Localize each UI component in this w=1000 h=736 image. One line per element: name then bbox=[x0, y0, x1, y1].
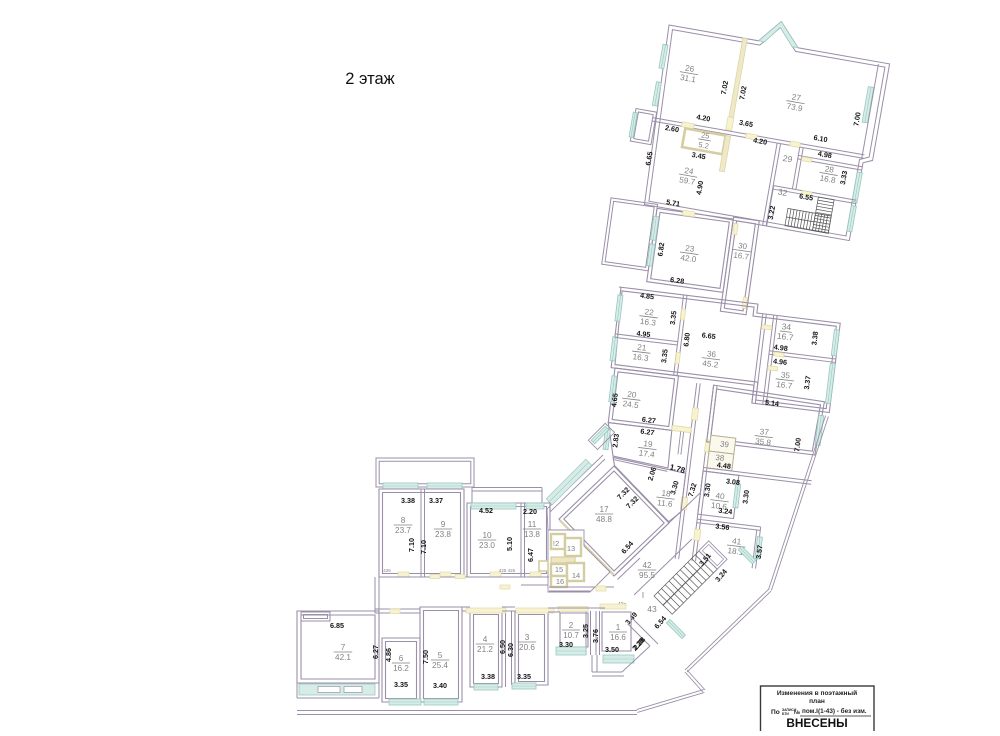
svg-text:4: 4 bbox=[483, 635, 488, 644]
svg-text:41: 41 bbox=[732, 537, 743, 547]
svg-text:18: 18 bbox=[661, 489, 672, 499]
svg-text:3.37: 3.37 bbox=[429, 496, 443, 505]
svg-text:95.5: 95.5 bbox=[639, 571, 655, 580]
svg-text:3.38: 3.38 bbox=[481, 672, 495, 681]
svg-text:4.65: 4.65 bbox=[609, 393, 620, 408]
svg-text:14: 14 bbox=[572, 571, 580, 580]
svg-text:!2: !2 bbox=[553, 539, 559, 548]
svg-text:6.65: 6.65 bbox=[701, 330, 716, 341]
svg-text:3.37: 3.37 bbox=[802, 375, 813, 390]
svg-text:40: 40 bbox=[715, 491, 726, 501]
svg-text:36: 36 bbox=[706, 349, 717, 359]
svg-text:3.38: 3.38 bbox=[809, 331, 820, 346]
svg-text:3.35: 3.35 bbox=[394, 680, 408, 689]
svg-text:16.6: 16.6 bbox=[610, 633, 626, 642]
svg-text:426: 426 bbox=[383, 568, 391, 573]
svg-text:13: 13 bbox=[567, 544, 575, 553]
svg-text:3.24: 3.24 bbox=[718, 506, 733, 517]
svg-text:10: 10 bbox=[482, 531, 492, 540]
svg-text:43: 43 bbox=[647, 604, 657, 614]
svg-text:По: По bbox=[771, 709, 780, 716]
svg-text:21.2: 21.2 bbox=[477, 645, 493, 654]
svg-text:2: 2 bbox=[569, 621, 574, 630]
svg-text:3.38: 3.38 bbox=[401, 496, 415, 505]
svg-text:16.7: 16.7 bbox=[776, 331, 794, 343]
svg-text:4.85: 4.85 bbox=[640, 291, 655, 302]
svg-text:30: 30 bbox=[738, 241, 749, 251]
svg-text:29: 29 bbox=[782, 153, 793, 165]
svg-text:7.00: 7.00 bbox=[792, 437, 803, 452]
svg-text:3.76: 3.76 bbox=[591, 629, 600, 643]
svg-text:425 426: 425 426 bbox=[499, 568, 516, 573]
svg-text:23.0: 23.0 bbox=[479, 541, 495, 550]
svg-text:16.2: 16.2 bbox=[393, 664, 409, 673]
svg-text:48.8: 48.8 bbox=[596, 515, 612, 524]
svg-text:7: 7 bbox=[341, 643, 346, 652]
svg-text:8: 8 bbox=[401, 516, 406, 525]
svg-text:6.27: 6.27 bbox=[640, 427, 655, 438]
svg-text:10.7: 10.7 bbox=[563, 631, 579, 640]
svg-text:пом.I(1-43) - без изм.: пом.I(1-43) - без изм. bbox=[802, 707, 867, 715]
svg-text:6.27: 6.27 bbox=[371, 645, 380, 659]
svg-text:3.35: 3.35 bbox=[659, 349, 670, 364]
svg-text:3.35: 3.35 bbox=[517, 672, 531, 681]
svg-text:3.56: 3.56 bbox=[715, 521, 730, 532]
svg-text:20.6: 20.6 bbox=[519, 643, 535, 652]
svg-text:19: 19 bbox=[643, 439, 654, 449]
svg-text:6.47: 6.47 bbox=[526, 548, 535, 562]
svg-text:3.40: 3.40 bbox=[433, 681, 447, 690]
svg-text:1: 1 bbox=[616, 623, 621, 632]
svg-text:42.1: 42.1 bbox=[335, 653, 351, 662]
svg-text:11.6: 11.6 bbox=[657, 498, 674, 509]
svg-text:4.52: 4.52 bbox=[479, 506, 493, 515]
svg-text:20: 20 bbox=[627, 390, 638, 400]
svg-text:5.2: 5.2 bbox=[698, 140, 710, 151]
svg-text:37: 37 bbox=[759, 427, 770, 437]
svg-text:32: 32 bbox=[777, 187, 788, 199]
svg-text:7.50: 7.50 bbox=[421, 650, 430, 664]
svg-text:3.50: 3.50 bbox=[605, 645, 619, 654]
svg-text:4.95: 4.95 bbox=[636, 329, 651, 340]
svg-text:5.10: 5.10 bbox=[505, 537, 514, 551]
svg-text:42: 42 bbox=[642, 561, 652, 570]
svg-text:17: 17 bbox=[599, 505, 609, 514]
svg-text:39: 39 bbox=[720, 439, 730, 449]
svg-text:7.10: 7.10 bbox=[407, 538, 416, 552]
svg-text:25.4: 25.4 bbox=[432, 661, 448, 670]
svg-text:ВНЕСЕНЫ: ВНЕСЕНЫ bbox=[786, 716, 847, 730]
svg-text:3.30: 3.30 bbox=[702, 483, 713, 498]
svg-text:5: 5 bbox=[438, 651, 443, 660]
svg-text:21: 21 bbox=[637, 343, 648, 353]
svg-text:I: I bbox=[642, 591, 644, 600]
svg-text:6.80: 6.80 bbox=[681, 332, 692, 347]
svg-text:3.35: 3.35 bbox=[668, 310, 679, 325]
svg-text:16: 16 bbox=[556, 577, 564, 586]
svg-text:3.30: 3.30 bbox=[740, 489, 751, 504]
svg-text:Изменения в поэтажный: Изменения в поэтажный bbox=[777, 689, 857, 697]
svg-text:13.8: 13.8 bbox=[524, 530, 540, 539]
svg-text:23.7: 23.7 bbox=[395, 526, 411, 535]
svg-text:6.85: 6.85 bbox=[330, 621, 344, 630]
svg-text:план: план bbox=[809, 698, 825, 705]
svg-text:15: 15 bbox=[555, 565, 563, 574]
svg-text:3.08: 3.08 bbox=[725, 476, 740, 487]
svg-text:23.8: 23.8 bbox=[435, 530, 451, 539]
svg-text:3.25: 3.25 bbox=[581, 624, 590, 638]
svg-text:6.30: 6.30 bbox=[506, 643, 515, 657]
svg-text:7.10: 7.10 bbox=[419, 540, 428, 554]
svg-text:4.96: 4.96 bbox=[773, 356, 788, 367]
svg-text:4.98: 4.98 bbox=[773, 342, 788, 353]
svg-text:4.86: 4.86 bbox=[384, 648, 393, 662]
svg-text:23: 23 bbox=[685, 244, 696, 254]
svg-text:5.14: 5.14 bbox=[765, 398, 780, 409]
svg-text:22: 22 bbox=[644, 307, 655, 317]
svg-text:3.57: 3.57 bbox=[754, 544, 765, 559]
svg-text:3: 3 bbox=[525, 633, 530, 642]
svg-text:4.48: 4.48 bbox=[716, 460, 731, 471]
svg-text:2.20: 2.20 bbox=[523, 507, 537, 516]
svg-text:11: 11 bbox=[528, 520, 537, 529]
svg-text:6: 6 bbox=[399, 654, 404, 663]
svg-text:2 этаж: 2 этаж bbox=[345, 70, 394, 88]
svg-text:3.30: 3.30 bbox=[559, 640, 573, 649]
svg-text:9: 9 bbox=[441, 520, 446, 529]
svg-text:6.27: 6.27 bbox=[641, 415, 656, 426]
svg-text:35: 35 bbox=[780, 370, 791, 380]
